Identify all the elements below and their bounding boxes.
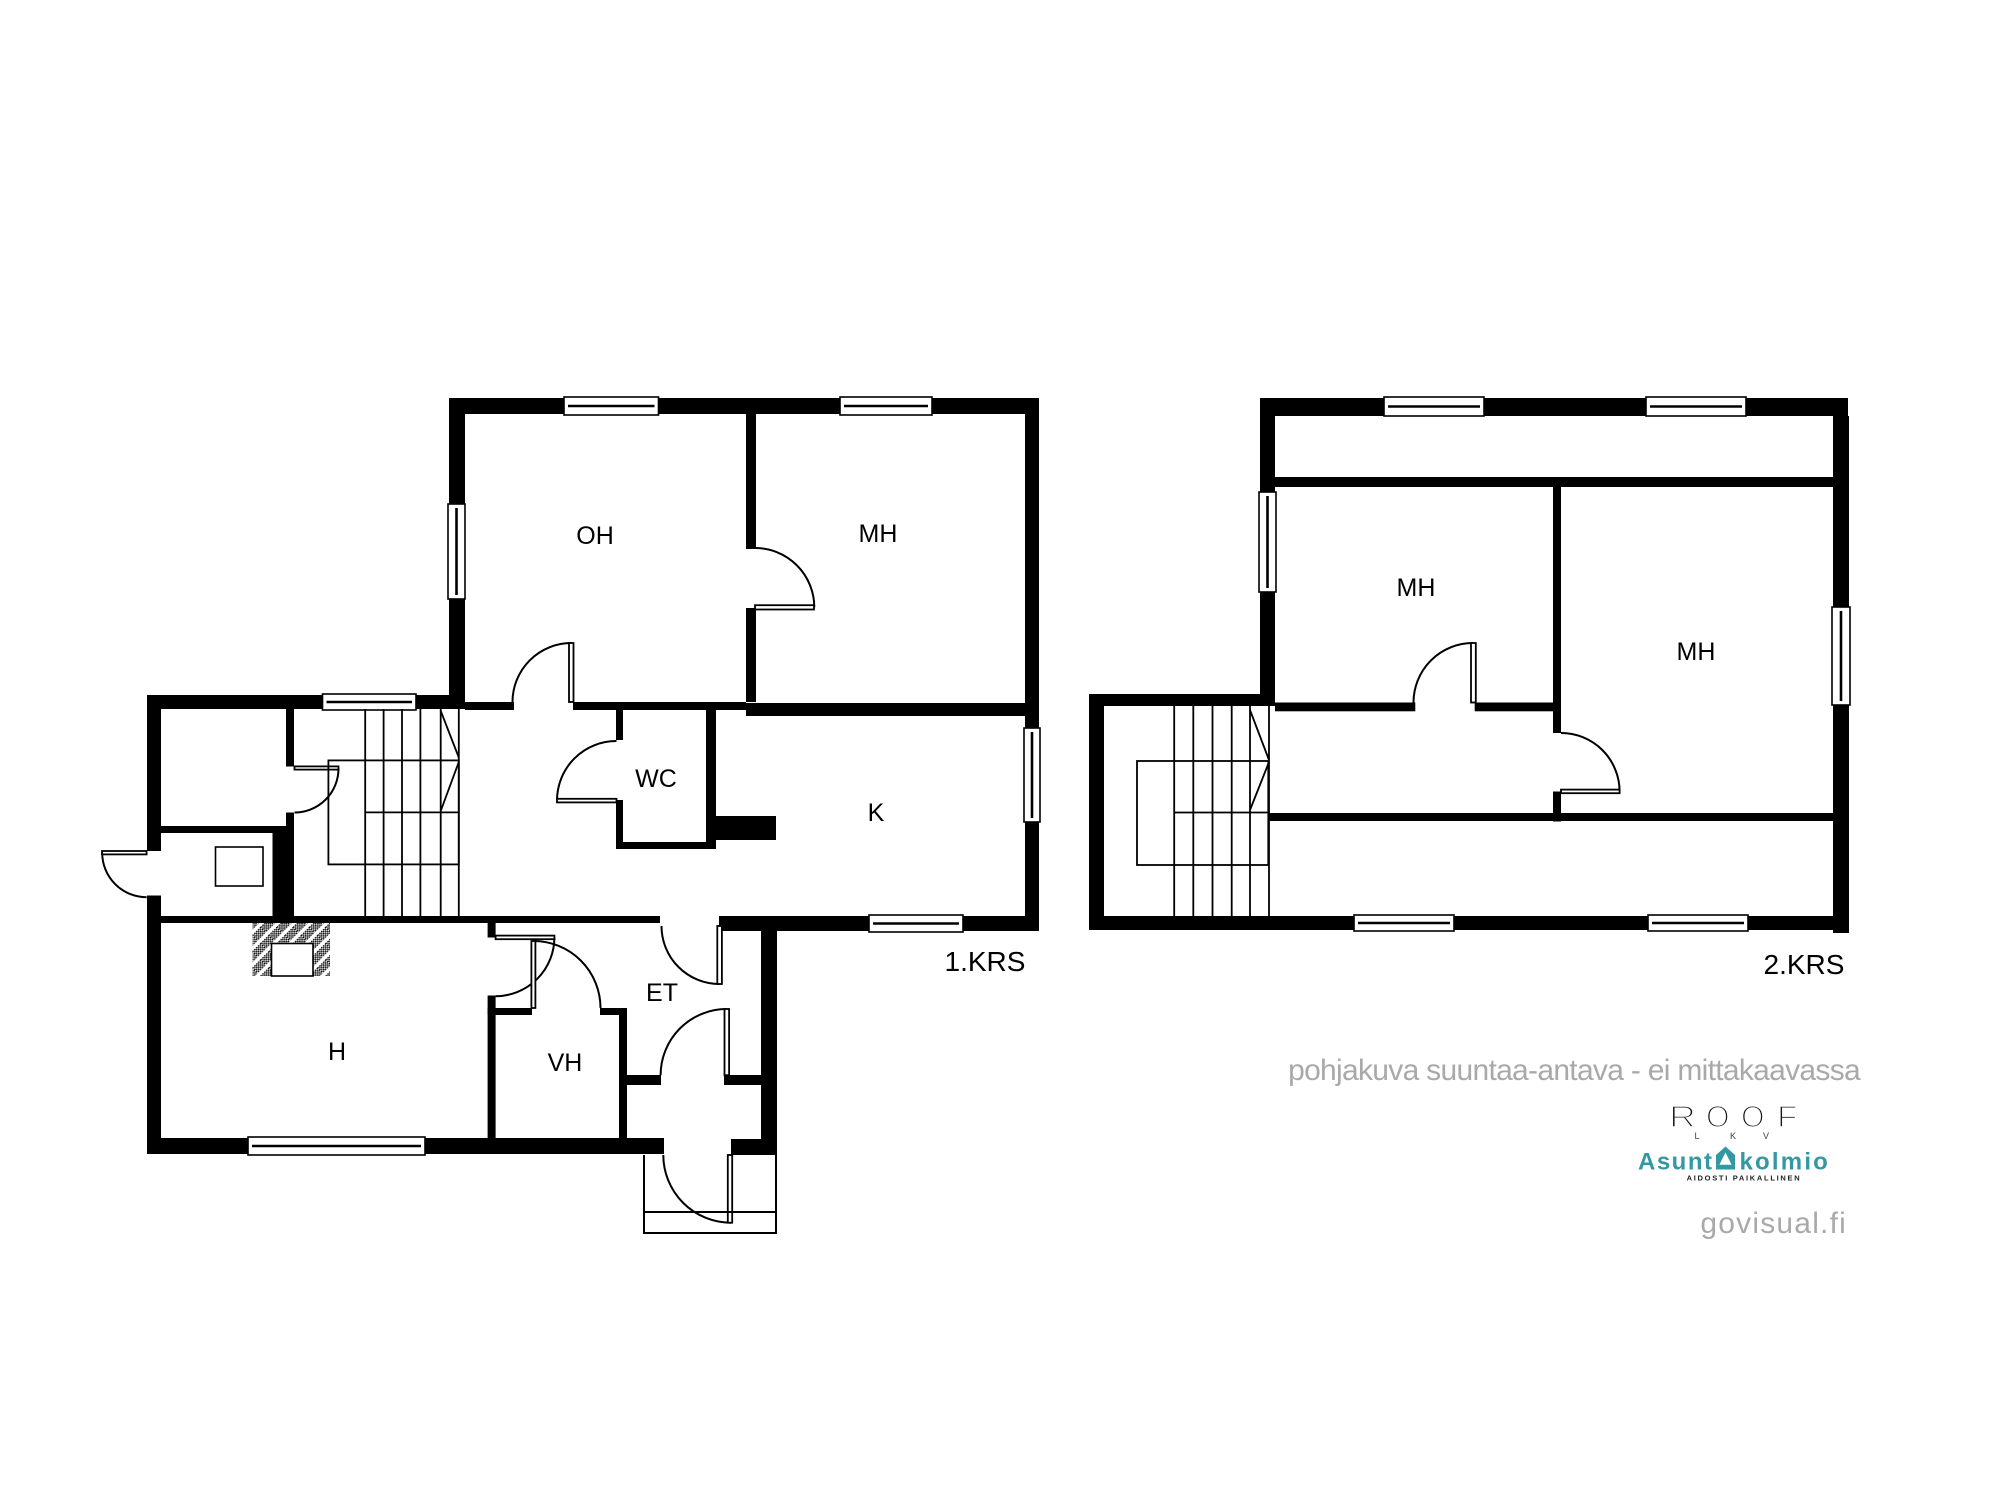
svg-text:OH: OH (576, 522, 614, 550)
svg-text:R: R (1669, 1099, 1696, 1134)
svg-text:K: K (1730, 1131, 1736, 1141)
svg-text:MH: MH (1397, 574, 1436, 602)
svg-text:L: L (1694, 1131, 1699, 1141)
svg-text:O: O (1741, 1099, 1765, 1134)
svg-text:1.KRS: 1.KRS (945, 946, 1026, 977)
svg-text:MH: MH (1677, 638, 1716, 666)
svg-text:ET: ET (646, 979, 678, 1007)
svg-text:WC: WC (635, 765, 677, 793)
svg-text:H: H (328, 1038, 346, 1066)
svg-text:V: V (1763, 1131, 1769, 1141)
svg-text:AIDOSTI PAIKALLINEN: AIDOSTI PAIKALLINEN (1687, 1174, 1802, 1183)
svg-text:govisual.fi: govisual.fi (1700, 1207, 1847, 1240)
svg-text:2.KRS: 2.KRS (1764, 949, 1845, 980)
svg-text:O: O (1706, 1099, 1730, 1134)
svg-text:VH: VH (548, 1049, 583, 1077)
svg-text:kolmio: kolmio (1740, 1149, 1831, 1176)
svg-text:MH: MH (859, 520, 898, 548)
svg-text:pohjakuva suuntaa-antava - ei: pohjakuva suuntaa-antava - ei mittakaava… (1288, 1054, 1861, 1087)
svg-text:Asunt: Asunt (1638, 1149, 1714, 1176)
svg-text:F: F (1777, 1099, 1798, 1134)
svg-text:K: K (868, 799, 885, 827)
